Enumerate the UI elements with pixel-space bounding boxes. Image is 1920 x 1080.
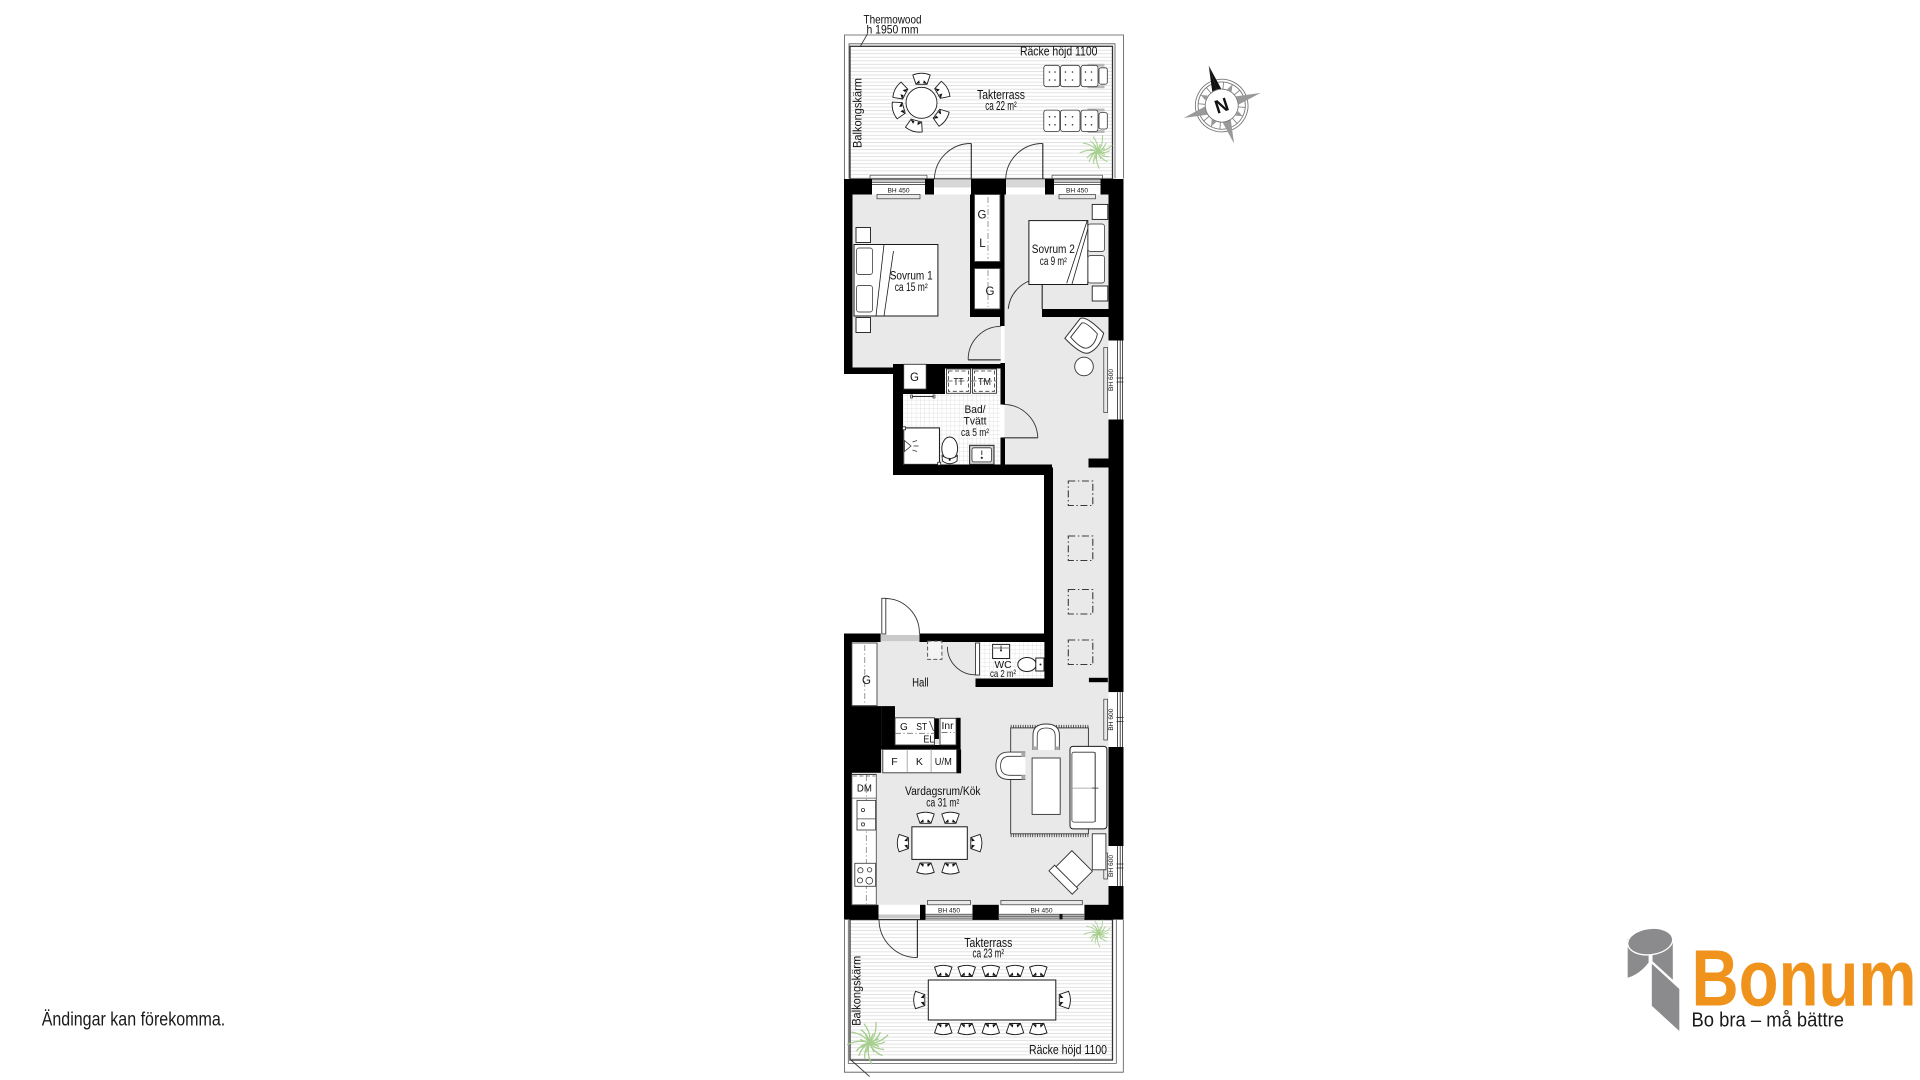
svg-text:G: G: [910, 372, 919, 384]
svg-text:Sovrum 1: Sovrum 1: [890, 271, 933, 283]
svg-text:Vardagsrum/Kök: Vardagsrum/Kök: [905, 786, 981, 798]
svg-text:BH 600: BH 600: [1108, 708, 1115, 730]
svg-text:Hall: Hall: [912, 678, 929, 690]
svg-text:Bo bra – må bättre: Bo bra – må bättre: [1692, 1009, 1845, 1032]
svg-text:ca 5 m²: ca 5 m²: [961, 427, 989, 439]
svg-text:TM: TM: [978, 377, 991, 388]
svg-text:G: G: [986, 286, 995, 298]
svg-text:Räcke höjd 1100: Räcke höjd 1100: [1020, 45, 1098, 59]
svg-text:DM: DM: [857, 783, 872, 795]
svg-text:K: K: [916, 756, 923, 768]
svg-text:ca 9 m²: ca 9 m²: [1040, 256, 1067, 268]
svg-text:h 1950 mm: h 1950 mm: [867, 23, 919, 37]
svg-text:Ändingar kan förekomma.: Ändingar kan förekomma.: [42, 1010, 226, 1031]
svg-text:ca 2 m²: ca 2 m²: [990, 668, 1016, 680]
svg-text:G: G: [862, 675, 871, 687]
svg-text:BH 600: BH 600: [1108, 855, 1115, 877]
svg-text:ST: ST: [916, 722, 927, 733]
svg-text:Inr: Inr: [942, 721, 955, 732]
svg-text:ca 15 m²: ca 15 m²: [895, 282, 928, 294]
svg-text:EL: EL: [923, 735, 934, 746]
svg-text:G: G: [978, 210, 987, 222]
svg-text:BH 450: BH 450: [888, 187, 910, 194]
svg-text:BH 450: BH 450: [1066, 187, 1088, 194]
svg-text:BH 450: BH 450: [938, 907, 960, 914]
svg-text:ca 23 m²: ca 23 m²: [973, 947, 1005, 961]
svg-text:F: F: [891, 756, 897, 768]
svg-text:Sovrum 2: Sovrum 2: [1032, 244, 1075, 256]
svg-text:U/M: U/M: [935, 756, 952, 768]
svg-text:ca 31 m²: ca 31 m²: [926, 798, 959, 810]
svg-text:Räcke höjd 1100: Räcke höjd 1100: [1029, 1043, 1107, 1057]
svg-text:ca 22 m²: ca 22 m²: [985, 99, 1017, 113]
svg-text:L: L: [979, 238, 986, 250]
svg-text:Bad/: Bad/: [965, 404, 987, 416]
svg-text:Tvätt: Tvätt: [964, 416, 987, 428]
svg-text:TT: TT: [954, 377, 964, 388]
svg-text:Balkongskärm: Balkongskärm: [853, 78, 865, 148]
svg-text:BH 600: BH 600: [1108, 369, 1115, 391]
svg-text:G: G: [900, 722, 908, 733]
svg-text:BH 450: BH 450: [1031, 907, 1053, 914]
svg-text:Balkongskärm: Balkongskärm: [851, 956, 863, 1026]
